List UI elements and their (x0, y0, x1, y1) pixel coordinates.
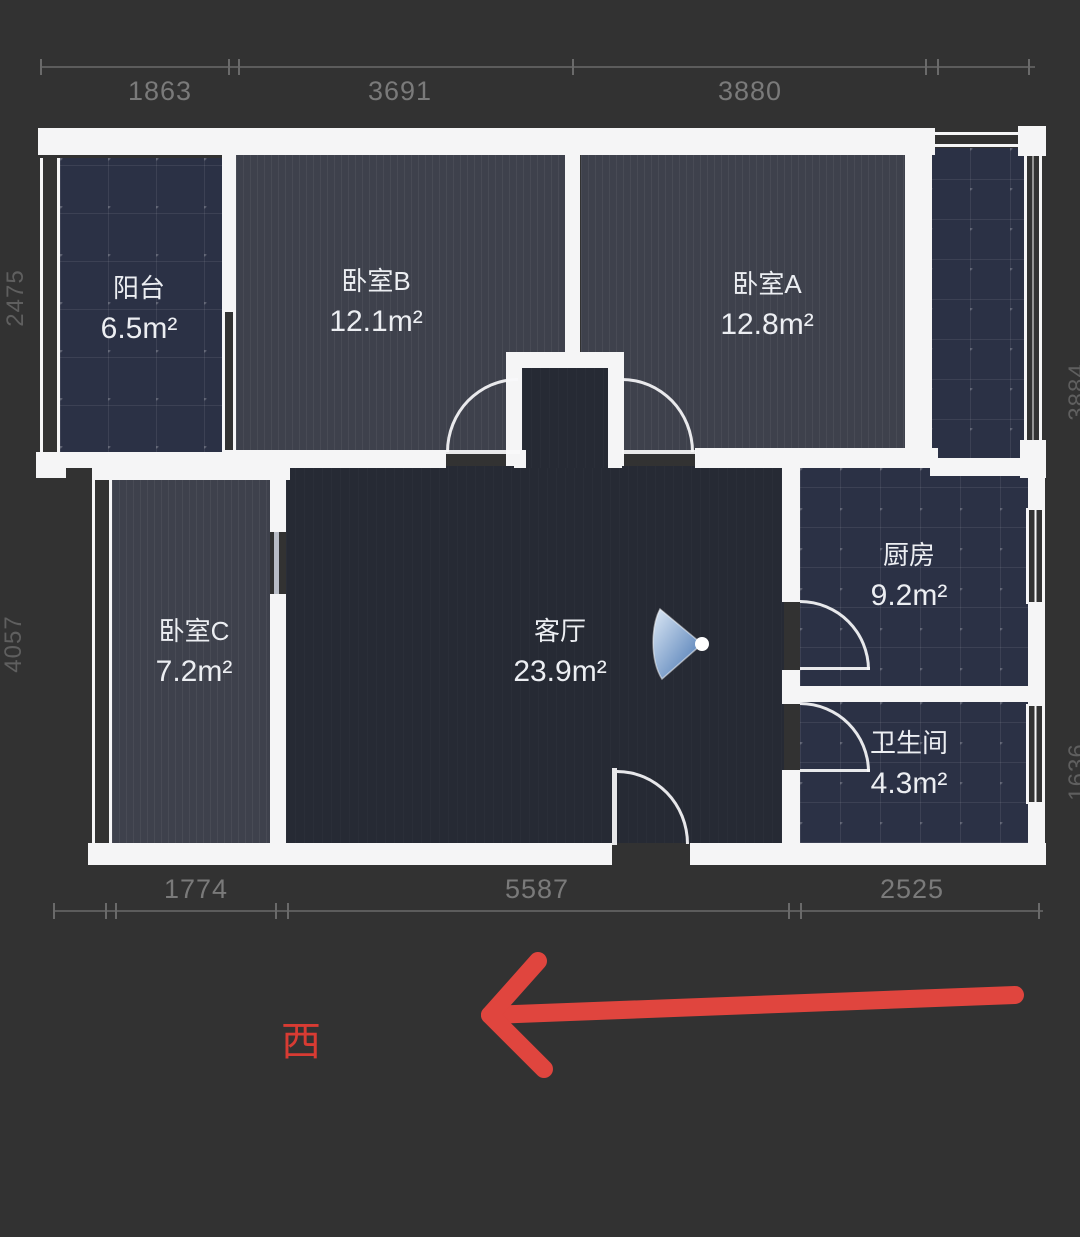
dim-label-right-2: 1636 (1064, 743, 1080, 800)
dimension-line-top (40, 66, 1035, 68)
room-label-bedroom-c: 卧室C 7.2m² (156, 611, 233, 689)
dim-label-bottom-3: 2525 (880, 874, 944, 905)
wall (608, 448, 622, 468)
wall (270, 478, 286, 532)
west-label: 西 (281, 1022, 321, 1062)
room-name: 阳台 (113, 268, 165, 305)
window (40, 158, 60, 454)
dim-tick (788, 903, 790, 919)
dim-label-bottom-1: 1774 (164, 874, 228, 905)
dim-label-right-1: 3884 (1064, 363, 1080, 420)
dim-tick (925, 59, 927, 75)
dim-tick (238, 59, 240, 75)
room-label-living: 客厅 23.9m² (513, 611, 606, 689)
dim-label-top-3: 3880 (718, 76, 782, 107)
dim-tick (287, 903, 289, 919)
room-area: 7.2m² (156, 655, 233, 689)
room-fill-living-nook (522, 368, 608, 468)
room-name: 卧室B (341, 261, 410, 298)
window (92, 480, 112, 843)
wall (38, 128, 935, 155)
window (1026, 704, 1045, 804)
dim-tick (53, 903, 55, 919)
dim-tick (800, 903, 802, 919)
dim-tick (40, 59, 42, 75)
wall (695, 448, 938, 468)
dim-tick (105, 903, 107, 919)
west-arrow-icon (460, 947, 1040, 1082)
window (1026, 508, 1045, 604)
room-area: 12.8m² (720, 308, 813, 342)
dim-tick (572, 59, 574, 75)
wall (270, 594, 286, 843)
dimension-line-bottom (53, 910, 1043, 912)
room-area: 12.1m² (329, 305, 422, 339)
wall (1028, 602, 1045, 706)
door-leaf (446, 450, 520, 454)
view-cone-icon[interactable] (648, 604, 710, 684)
dim-tick (937, 59, 939, 75)
dim-tick (1028, 59, 1030, 75)
dim-label-left-1: 2475 (2, 269, 30, 326)
room-label-kitchen: 厨房 9.2m² (871, 535, 948, 613)
room-area: 6.5m² (101, 312, 178, 346)
door-leaf (800, 769, 870, 772)
room-fill-bay (930, 148, 1026, 460)
dim-label-left-2: 4057 (0, 615, 28, 672)
wall (88, 843, 612, 865)
room-label-bedroom-b: 卧室B 12.1m² (329, 261, 422, 339)
dim-tick (1038, 903, 1040, 919)
wall (506, 352, 624, 368)
dim-tick (228, 59, 230, 75)
dim-label-top-1: 1863 (128, 76, 192, 107)
window (222, 312, 236, 454)
door-leaf (800, 667, 870, 670)
room-name: 卧室A (732, 264, 801, 301)
room-area: 9.2m² (871, 579, 948, 613)
room-name: 卫生间 (870, 723, 948, 760)
wall (1028, 458, 1045, 510)
wall (905, 155, 932, 452)
wall (782, 462, 800, 602)
room-name: 客厅 (534, 611, 586, 648)
wall (222, 155, 236, 312)
room-name: 卧室C (159, 611, 230, 648)
room-label-balcony: 阳台 6.5m² (101, 268, 178, 346)
room-area: 23.9m² (513, 655, 606, 689)
room-label-bedroom-a: 卧室A 12.8m² (720, 264, 813, 342)
room-name: 厨房 (883, 535, 935, 572)
window (932, 132, 1020, 147)
wall (236, 450, 446, 468)
floor-plan: 1863 3691 3880 1774 5587 2525 2475 4057 … (0, 0, 1080, 1237)
sliding-door-panel (274, 532, 279, 594)
wall (796, 686, 1045, 702)
room-area: 4.3m² (871, 767, 948, 801)
wall (782, 770, 800, 847)
wall (690, 843, 1046, 865)
dim-tick (115, 903, 117, 919)
door-leaf (622, 450, 696, 454)
room-label-bathroom: 卫生间 4.3m² (870, 723, 948, 801)
dim-label-bottom-2: 5587 (505, 874, 569, 905)
window (1024, 152, 1042, 444)
dim-label-top-2: 3691 (368, 76, 432, 107)
wall (565, 150, 580, 368)
dim-tick (275, 903, 277, 919)
